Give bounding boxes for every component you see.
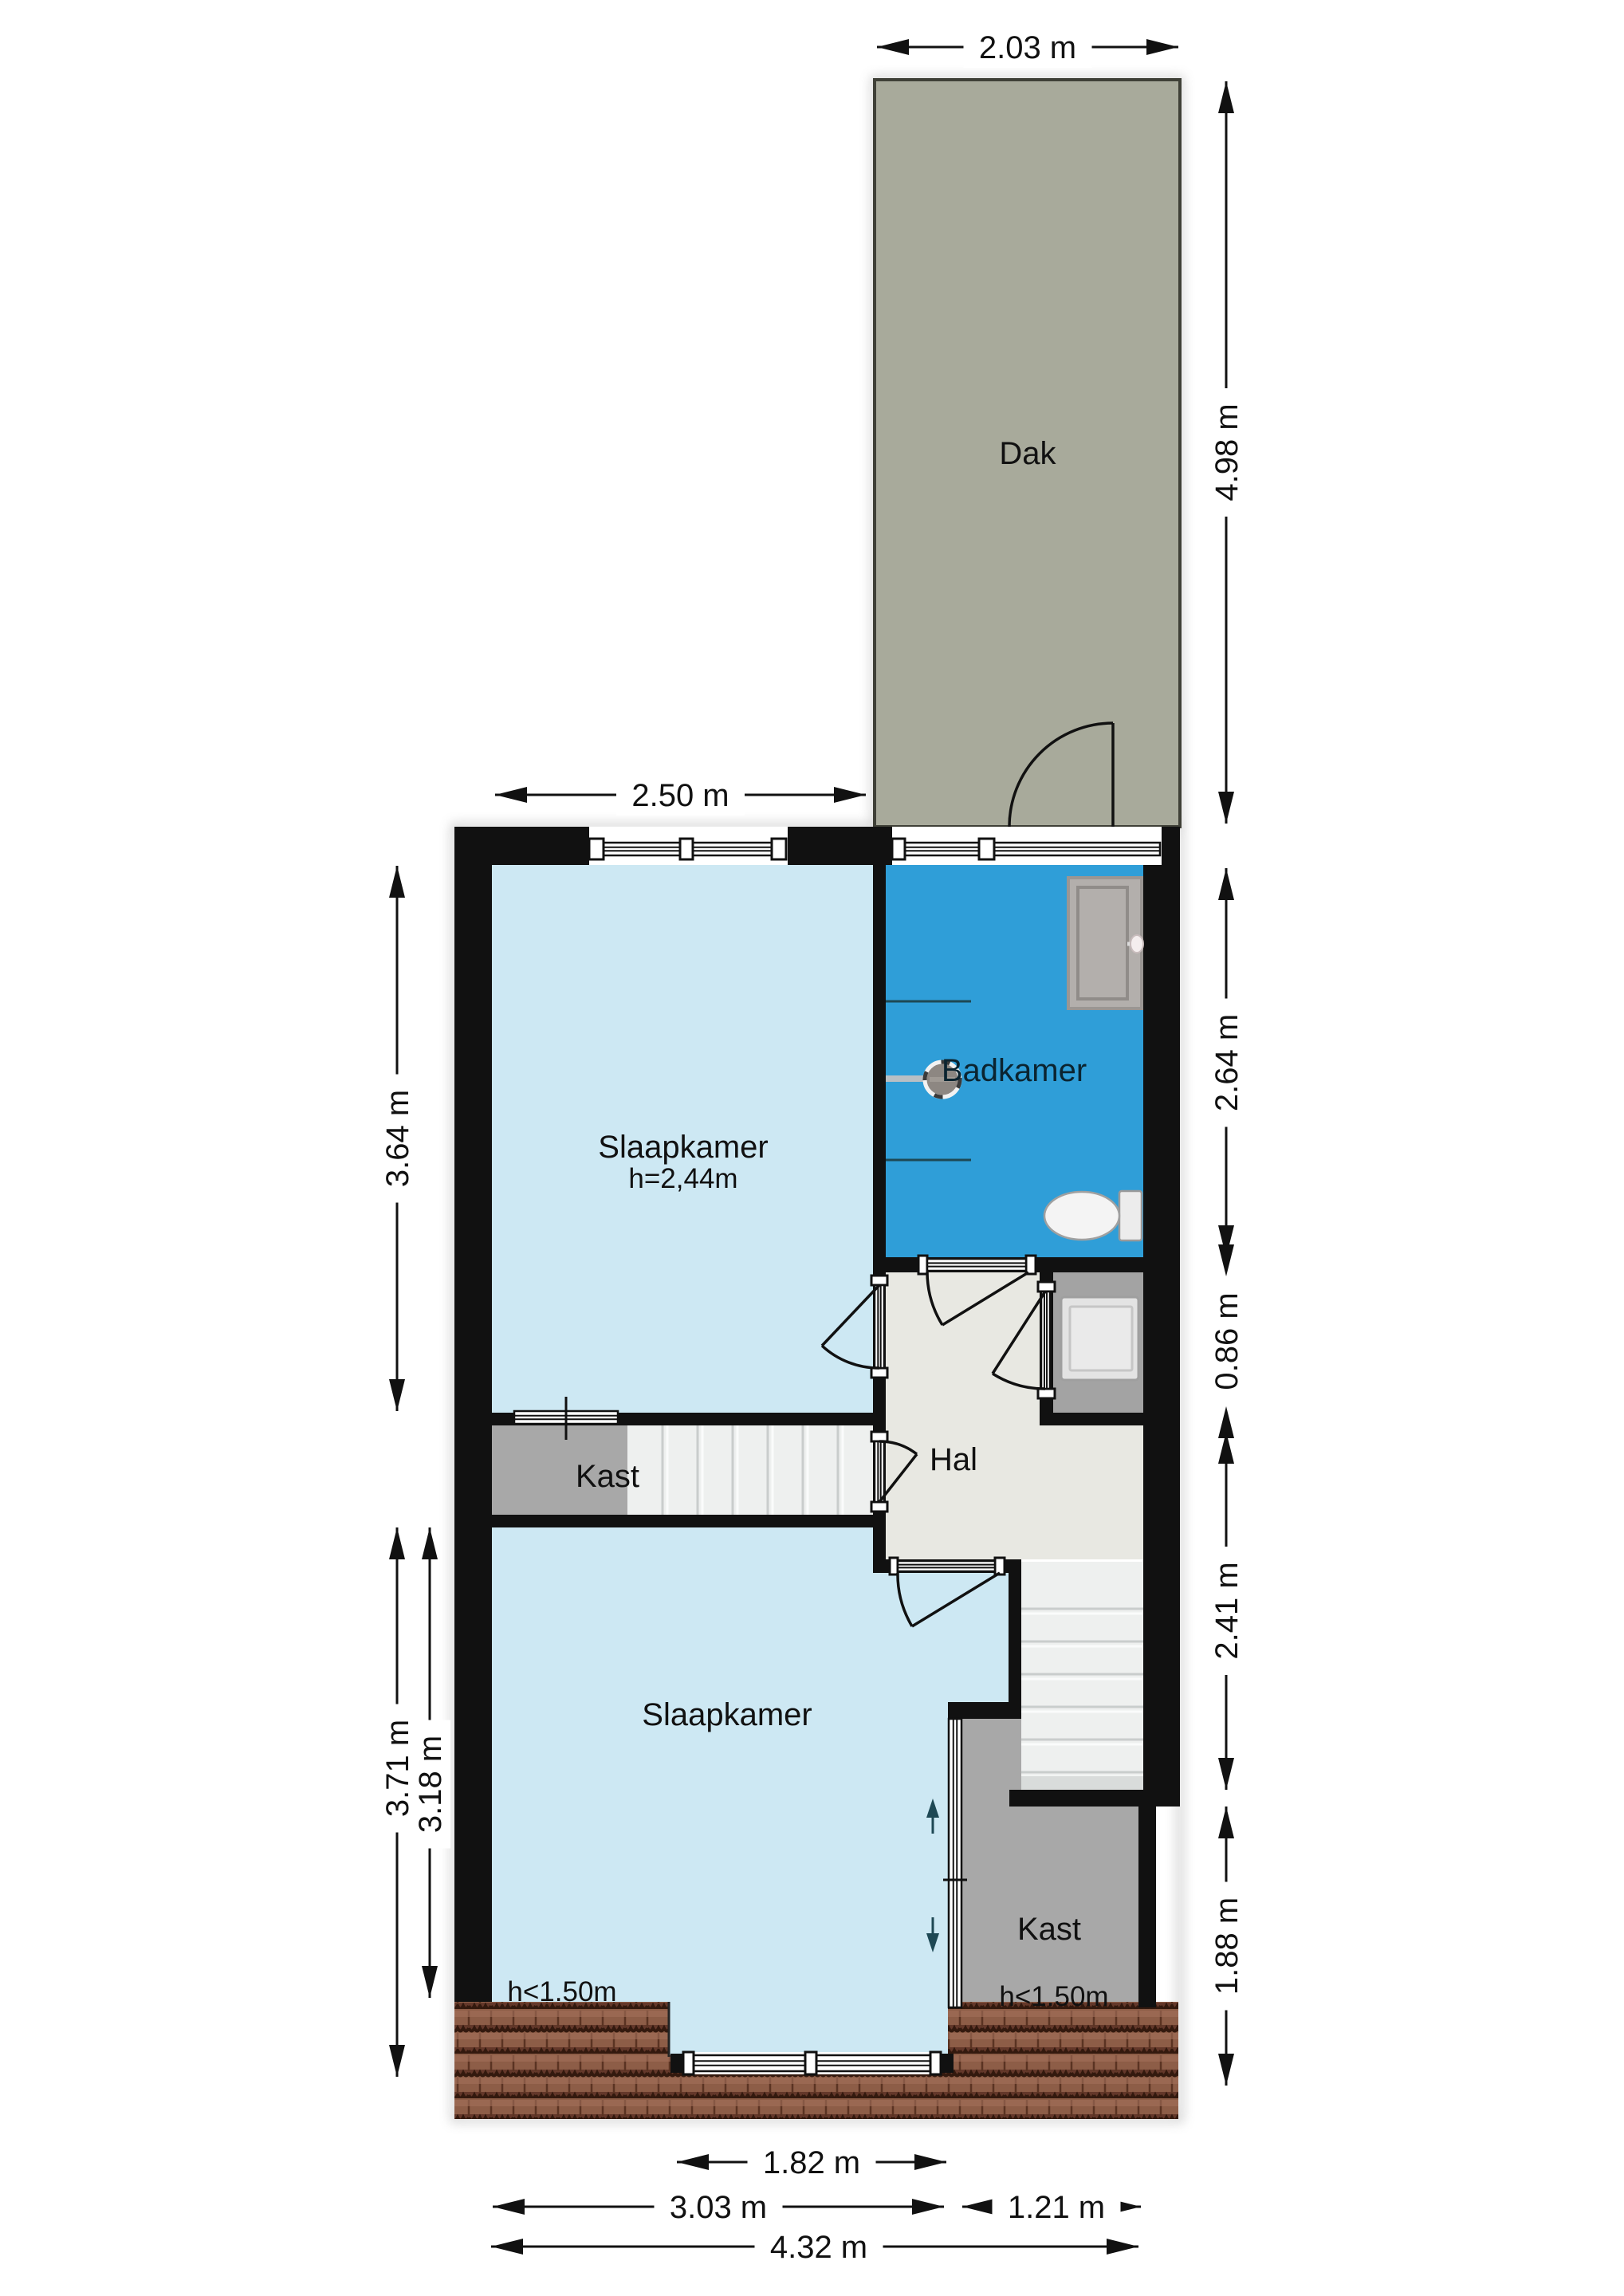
svg-text:h<1.50m: h<1.50m: [999, 1981, 1108, 2012]
svg-text:4.98 m: 4.98 m: [1209, 403, 1245, 501]
svg-text:Slaapkamer: Slaapkamer: [642, 1697, 812, 1732]
svg-text:1.21 m: 1.21 m: [1008, 2190, 1105, 2225]
svg-text:2.41 m: 2.41 m: [1209, 1562, 1245, 1659]
svg-text:3.64 m: 3.64 m: [380, 1090, 415, 1187]
svg-text:1.88 m: 1.88 m: [1209, 1897, 1245, 1995]
svg-text:2.50 m: 2.50 m: [631, 778, 729, 813]
svg-text:Kast: Kast: [1017, 1912, 1081, 1947]
svg-text:Badkamer: Badkamer: [942, 1053, 1087, 1088]
svg-text:2.64 m: 2.64 m: [1209, 1014, 1245, 1111]
svg-text:4.32 m: 4.32 m: [770, 2230, 867, 2265]
svg-text:h<1.50m: h<1.50m: [507, 1976, 616, 2007]
svg-text:3.18 m: 3.18 m: [413, 1736, 448, 1833]
svg-text:Hal: Hal: [930, 1442, 977, 1477]
svg-text:2.03 m: 2.03 m: [979, 30, 1076, 65]
svg-text:h=2,44m: h=2,44m: [628, 1163, 737, 1194]
svg-text:Slaapkamer: Slaapkamer: [598, 1130, 768, 1165]
svg-text:Dak: Dak: [999, 436, 1056, 471]
svg-text:0.86 m: 0.86 m: [1209, 1292, 1245, 1390]
svg-text:1.82 m: 1.82 m: [763, 2145, 860, 2180]
svg-text:Kast: Kast: [576, 1459, 639, 1494]
svg-text:3.03 m: 3.03 m: [670, 2190, 767, 2225]
